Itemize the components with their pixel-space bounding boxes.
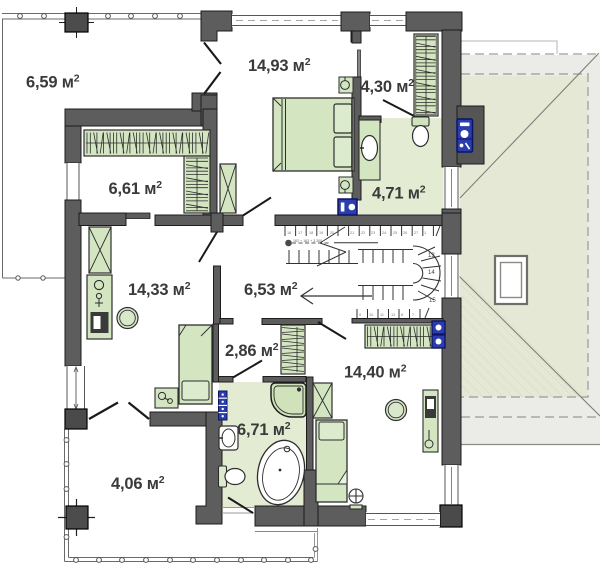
svg-text:19: 19	[319, 231, 323, 235]
svg-text:18: 18	[309, 231, 313, 235]
svg-text:15: 15	[429, 298, 436, 304]
svg-text:2,86 м2: 2,86 м2	[225, 341, 279, 360]
svg-text:26: 26	[403, 231, 407, 235]
svg-text:4,71 м2: 4,71 м2	[372, 184, 426, 203]
svg-text:6,71 м2: 6,71 м2	[237, 420, 291, 439]
svg-text:4,30 м2: 4,30 м2	[361, 77, 415, 96]
svg-text:7: 7	[412, 313, 414, 317]
svg-text:14: 14	[428, 270, 435, 276]
svg-text:162 + 163 + 3.300: 162 + 163 + 3.300	[293, 239, 322, 243]
svg-text:13: 13	[428, 253, 435, 259]
svg-text:6,59 м2: 6,59 м2	[26, 73, 80, 92]
svg-text:16: 16	[287, 231, 291, 235]
svg-text:14,93 м2: 14,93 м2	[248, 56, 311, 75]
svg-text:6,53 м2: 6,53 м2	[244, 280, 298, 299]
svg-text:27: 27	[414, 231, 418, 235]
svg-text:12: 12	[391, 313, 395, 317]
svg-text:24: 24	[382, 231, 386, 235]
svg-text:25: 25	[393, 231, 397, 235]
svg-text:21: 21	[350, 231, 354, 235]
svg-text:17: 17	[298, 231, 302, 235]
svg-text:9: 9	[359, 313, 361, 317]
svg-text:11: 11	[380, 313, 384, 317]
svg-text:14,33 м2: 14,33 м2	[128, 280, 191, 299]
svg-text:8: 8	[401, 313, 403, 317]
svg-text:10: 10	[369, 313, 373, 317]
svg-text:14,40 м2: 14,40 м2	[344, 363, 407, 382]
svg-text:22: 22	[361, 231, 365, 235]
svg-text:1: 1	[424, 231, 426, 235]
svg-text:4,06 м2: 4,06 м2	[111, 474, 165, 493]
svg-text:23: 23	[371, 231, 375, 235]
svg-text:6,61 м2: 6,61 м2	[109, 179, 163, 198]
